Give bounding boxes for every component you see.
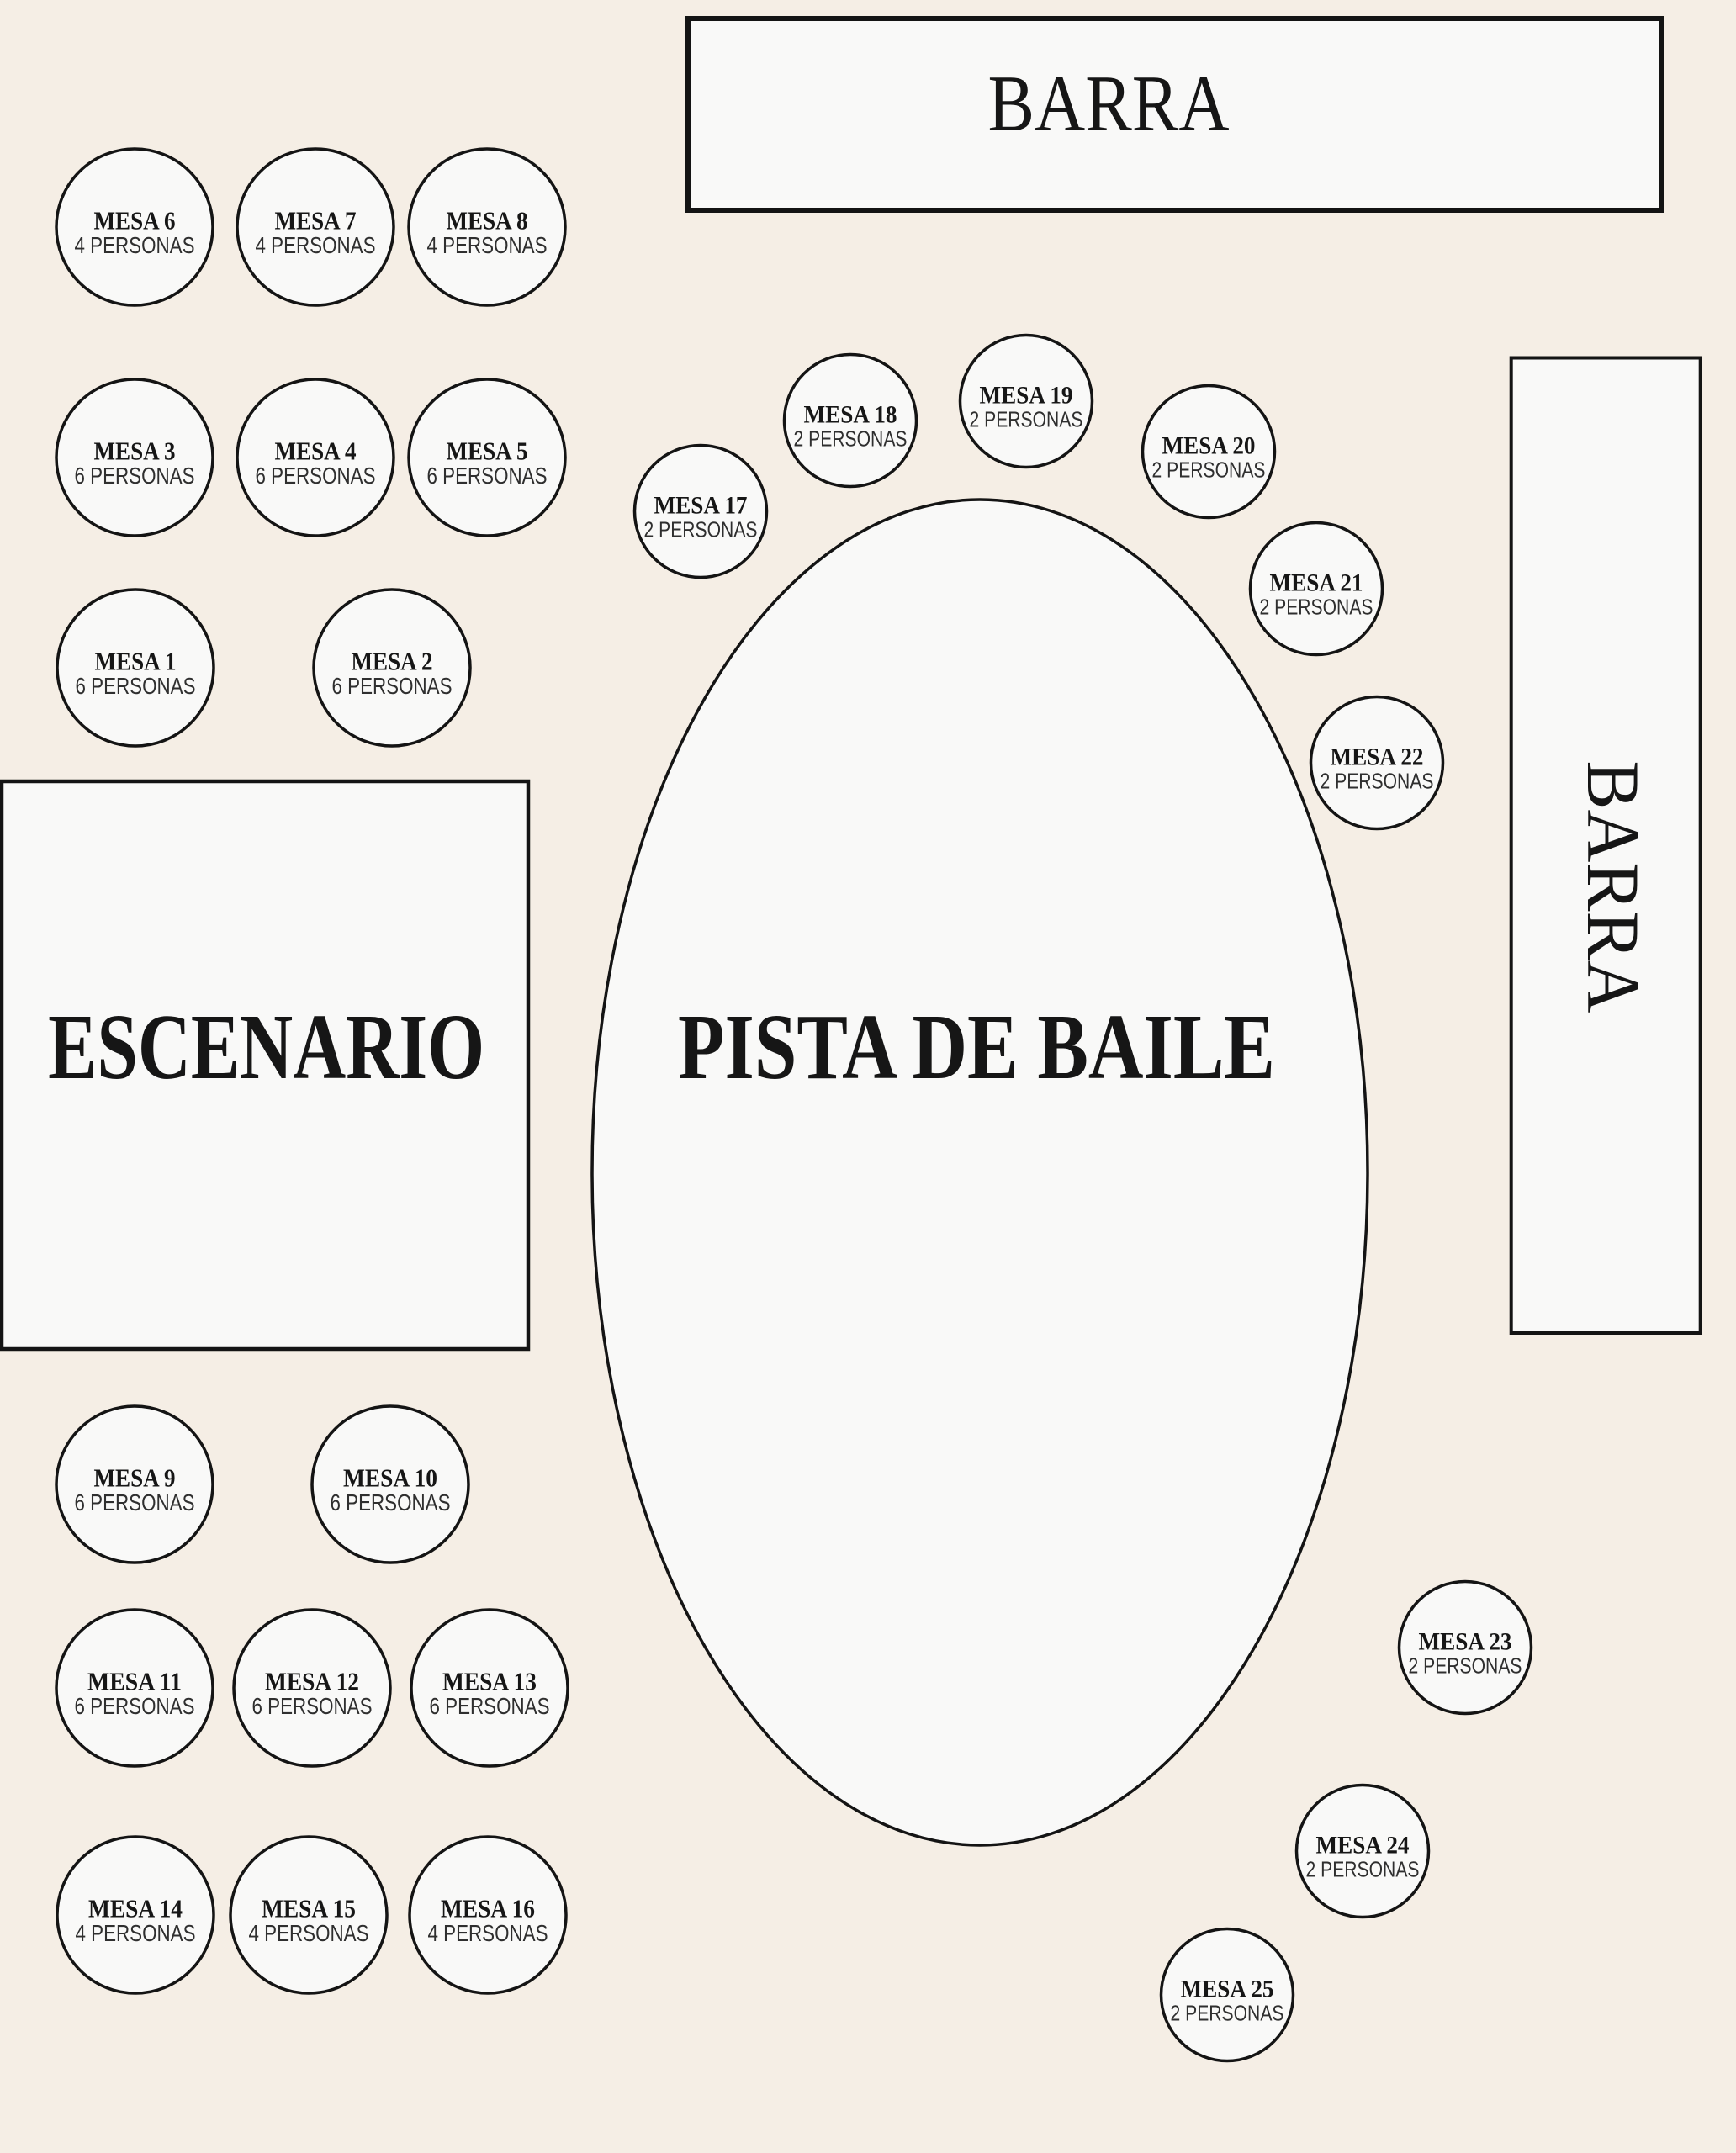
- svg-text:MESA 20: MESA 20: [1162, 432, 1256, 460]
- svg-text:2 PERSONAS: 2 PERSONAS: [1321, 770, 1434, 794]
- svg-text:BARRA: BARRA: [988, 59, 1230, 148]
- svg-text:6 PERSONAS: 6 PERSONAS: [256, 463, 376, 489]
- svg-text:MESA 14: MESA 14: [88, 1894, 183, 1923]
- svg-text:MESA 2: MESA 2: [352, 647, 433, 676]
- svg-text:6 PERSONAS: 6 PERSONAS: [331, 1489, 451, 1516]
- svg-text:MESA 11: MESA 11: [87, 1667, 182, 1696]
- svg-text:MESA 21: MESA 21: [1270, 569, 1363, 597]
- svg-text:MESA 1: MESA 1: [95, 647, 177, 676]
- svg-text:4 PERSONAS: 4 PERSONAS: [428, 1920, 548, 1946]
- svg-text:4 PERSONAS: 4 PERSONAS: [256, 232, 376, 258]
- svg-text:ESCENARIO: ESCENARIO: [48, 996, 484, 1099]
- svg-text:2 PERSONAS: 2 PERSONAS: [1152, 459, 1266, 483]
- svg-text:2 PERSONAS: 2 PERSONAS: [1171, 2002, 1284, 2026]
- svg-text:MESA 24: MESA 24: [1316, 1832, 1410, 1859]
- svg-text:MESA 22: MESA 22: [1331, 743, 1424, 771]
- svg-text:2 PERSONAS: 2 PERSONAS: [1260, 596, 1373, 620]
- svg-text:MESA 13: MESA 13: [442, 1667, 537, 1696]
- svg-text:6 PERSONAS: 6 PERSONAS: [252, 1693, 373, 1719]
- svg-text:MESA 23: MESA 23: [1419, 1628, 1512, 1656]
- svg-text:MESA 25: MESA 25: [1181, 1976, 1274, 2003]
- svg-text:MESA 9: MESA 9: [94, 1463, 176, 1493]
- svg-text:4 PERSONAS: 4 PERSONAS: [75, 232, 195, 258]
- svg-text:4 PERSONAS: 4 PERSONAS: [427, 232, 548, 258]
- svg-text:2 PERSONAS: 2 PERSONAS: [644, 519, 758, 542]
- svg-text:MESA 19: MESA 19: [980, 382, 1073, 410]
- svg-text:MESA 10: MESA 10: [343, 1463, 437, 1493]
- svg-text:4 PERSONAS: 4 PERSONAS: [76, 1920, 196, 1946]
- svg-text:BARRA: BARRA: [1571, 760, 1654, 1013]
- svg-text:2 PERSONAS: 2 PERSONAS: [1306, 1859, 1420, 1882]
- svg-text:MESA 15: MESA 15: [262, 1894, 356, 1923]
- svg-text:2 PERSONAS: 2 PERSONAS: [970, 409, 1083, 432]
- svg-text:MESA 5: MESA 5: [447, 436, 528, 466]
- svg-text:MESA 18: MESA 18: [804, 401, 897, 429]
- svg-text:6 PERSONAS: 6 PERSONAS: [332, 673, 453, 699]
- svg-text:MESA 8: MESA 8: [447, 206, 528, 235]
- svg-text:PISTA DE BAILE: PISTA DE BAILE: [678, 996, 1275, 1099]
- svg-text:MESA 12: MESA 12: [265, 1667, 359, 1696]
- svg-text:MESA 7: MESA 7: [275, 206, 357, 235]
- svg-text:6 PERSONAS: 6 PERSONAS: [75, 463, 195, 489]
- svg-text:6 PERSONAS: 6 PERSONAS: [427, 463, 548, 489]
- svg-text:MESA 17: MESA 17: [654, 492, 748, 520]
- svg-text:6 PERSONAS: 6 PERSONAS: [76, 673, 196, 699]
- svg-text:6 PERSONAS: 6 PERSONAS: [75, 1489, 195, 1516]
- svg-text:6 PERSONAS: 6 PERSONAS: [430, 1693, 550, 1719]
- svg-text:MESA 6: MESA 6: [94, 206, 176, 235]
- svg-text:6 PERSONAS: 6 PERSONAS: [75, 1693, 195, 1719]
- svg-text:MESA 3: MESA 3: [94, 436, 176, 466]
- svg-text:MESA 4: MESA 4: [275, 436, 357, 466]
- svg-text:2 PERSONAS: 2 PERSONAS: [1409, 1655, 1522, 1679]
- svg-text:4 PERSONAS: 4 PERSONAS: [249, 1920, 369, 1946]
- svg-text:2 PERSONAS: 2 PERSONAS: [794, 428, 908, 452]
- svg-text:MESA 16: MESA 16: [441, 1894, 535, 1923]
